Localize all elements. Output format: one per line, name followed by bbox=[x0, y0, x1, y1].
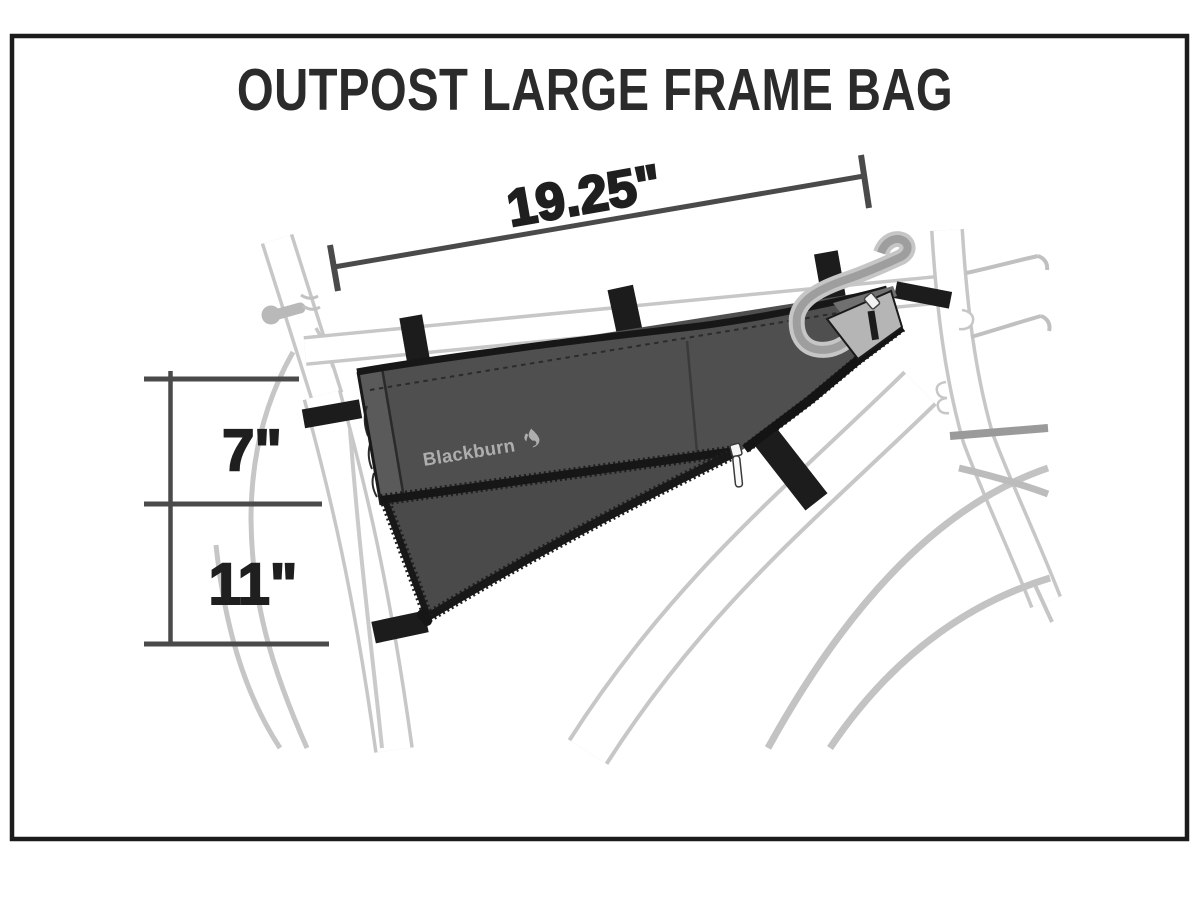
svg-text:OUTPOST LARGE FRAME BAG: OUTPOST LARGE FRAME BAG bbox=[237, 58, 953, 123]
svg-text:11": 11" bbox=[209, 552, 298, 617]
svg-text:7": 7" bbox=[222, 418, 282, 483]
